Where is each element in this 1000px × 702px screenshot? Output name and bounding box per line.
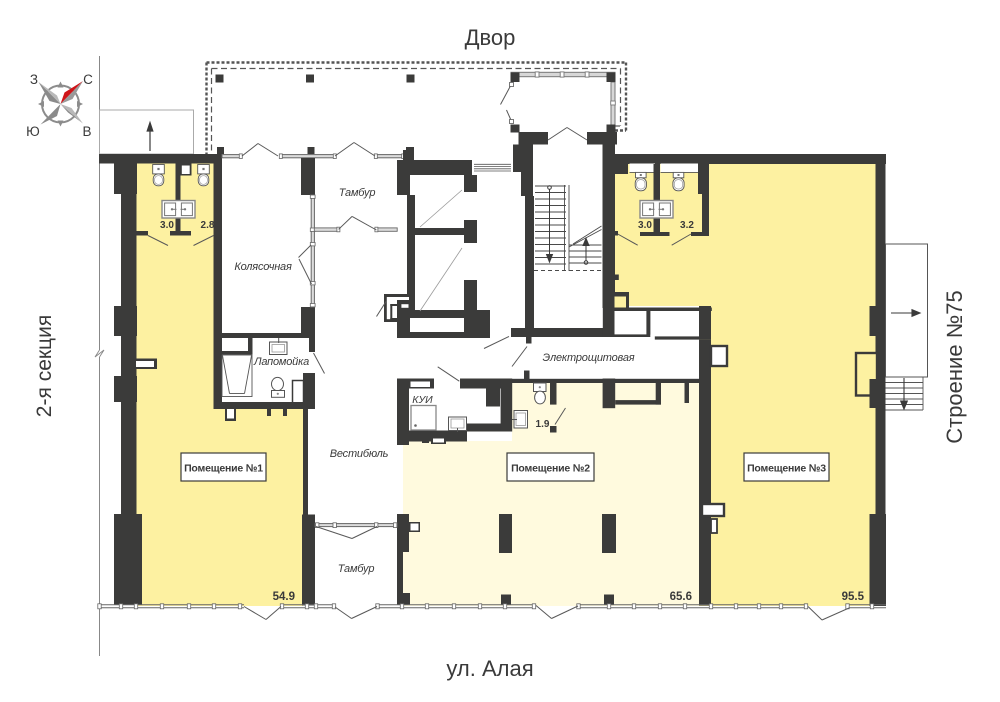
svg-text:В: В: [82, 124, 91, 139]
svg-text:Электрощитовая: Электрощитовая: [543, 352, 635, 364]
svg-text:2.8: 2.8: [201, 220, 215, 231]
svg-text:Строение №75: Строение №75: [942, 290, 967, 444]
svg-text:Колясочная: Колясочная: [234, 261, 292, 273]
svg-text:Помещение №2: Помещение №2: [511, 463, 590, 475]
svg-text:1.9: 1.9: [536, 419, 550, 430]
svg-text:Ю: Ю: [26, 124, 40, 139]
svg-text:Помещение №3: Помещение №3: [747, 463, 826, 475]
svg-text:Помещение №1: Помещение №1: [184, 463, 263, 475]
svg-text:3.2: 3.2: [680, 220, 694, 231]
svg-text:КУИ: КУИ: [412, 394, 433, 406]
svg-text:Тамбур: Тамбур: [338, 563, 375, 575]
svg-text:95.5: 95.5: [842, 591, 865, 603]
svg-text:3.0: 3.0: [160, 220, 174, 231]
svg-text:С: С: [83, 72, 93, 87]
svg-text:Лапомойка: Лапомойка: [253, 356, 309, 368]
svg-text:Вестибюль: Вестибюль: [330, 448, 389, 460]
svg-text:Тамбур: Тамбур: [339, 187, 376, 199]
svg-text:65.6: 65.6: [670, 591, 692, 603]
svg-text:З: З: [30, 72, 38, 87]
svg-text:54.9: 54.9: [273, 591, 295, 603]
svg-text:Двор: Двор: [465, 25, 516, 50]
svg-text:ул. Алая: ул. Алая: [446, 656, 533, 681]
svg-text:2-я секция: 2-я секция: [33, 315, 56, 417]
svg-text:3.0: 3.0: [638, 220, 652, 231]
